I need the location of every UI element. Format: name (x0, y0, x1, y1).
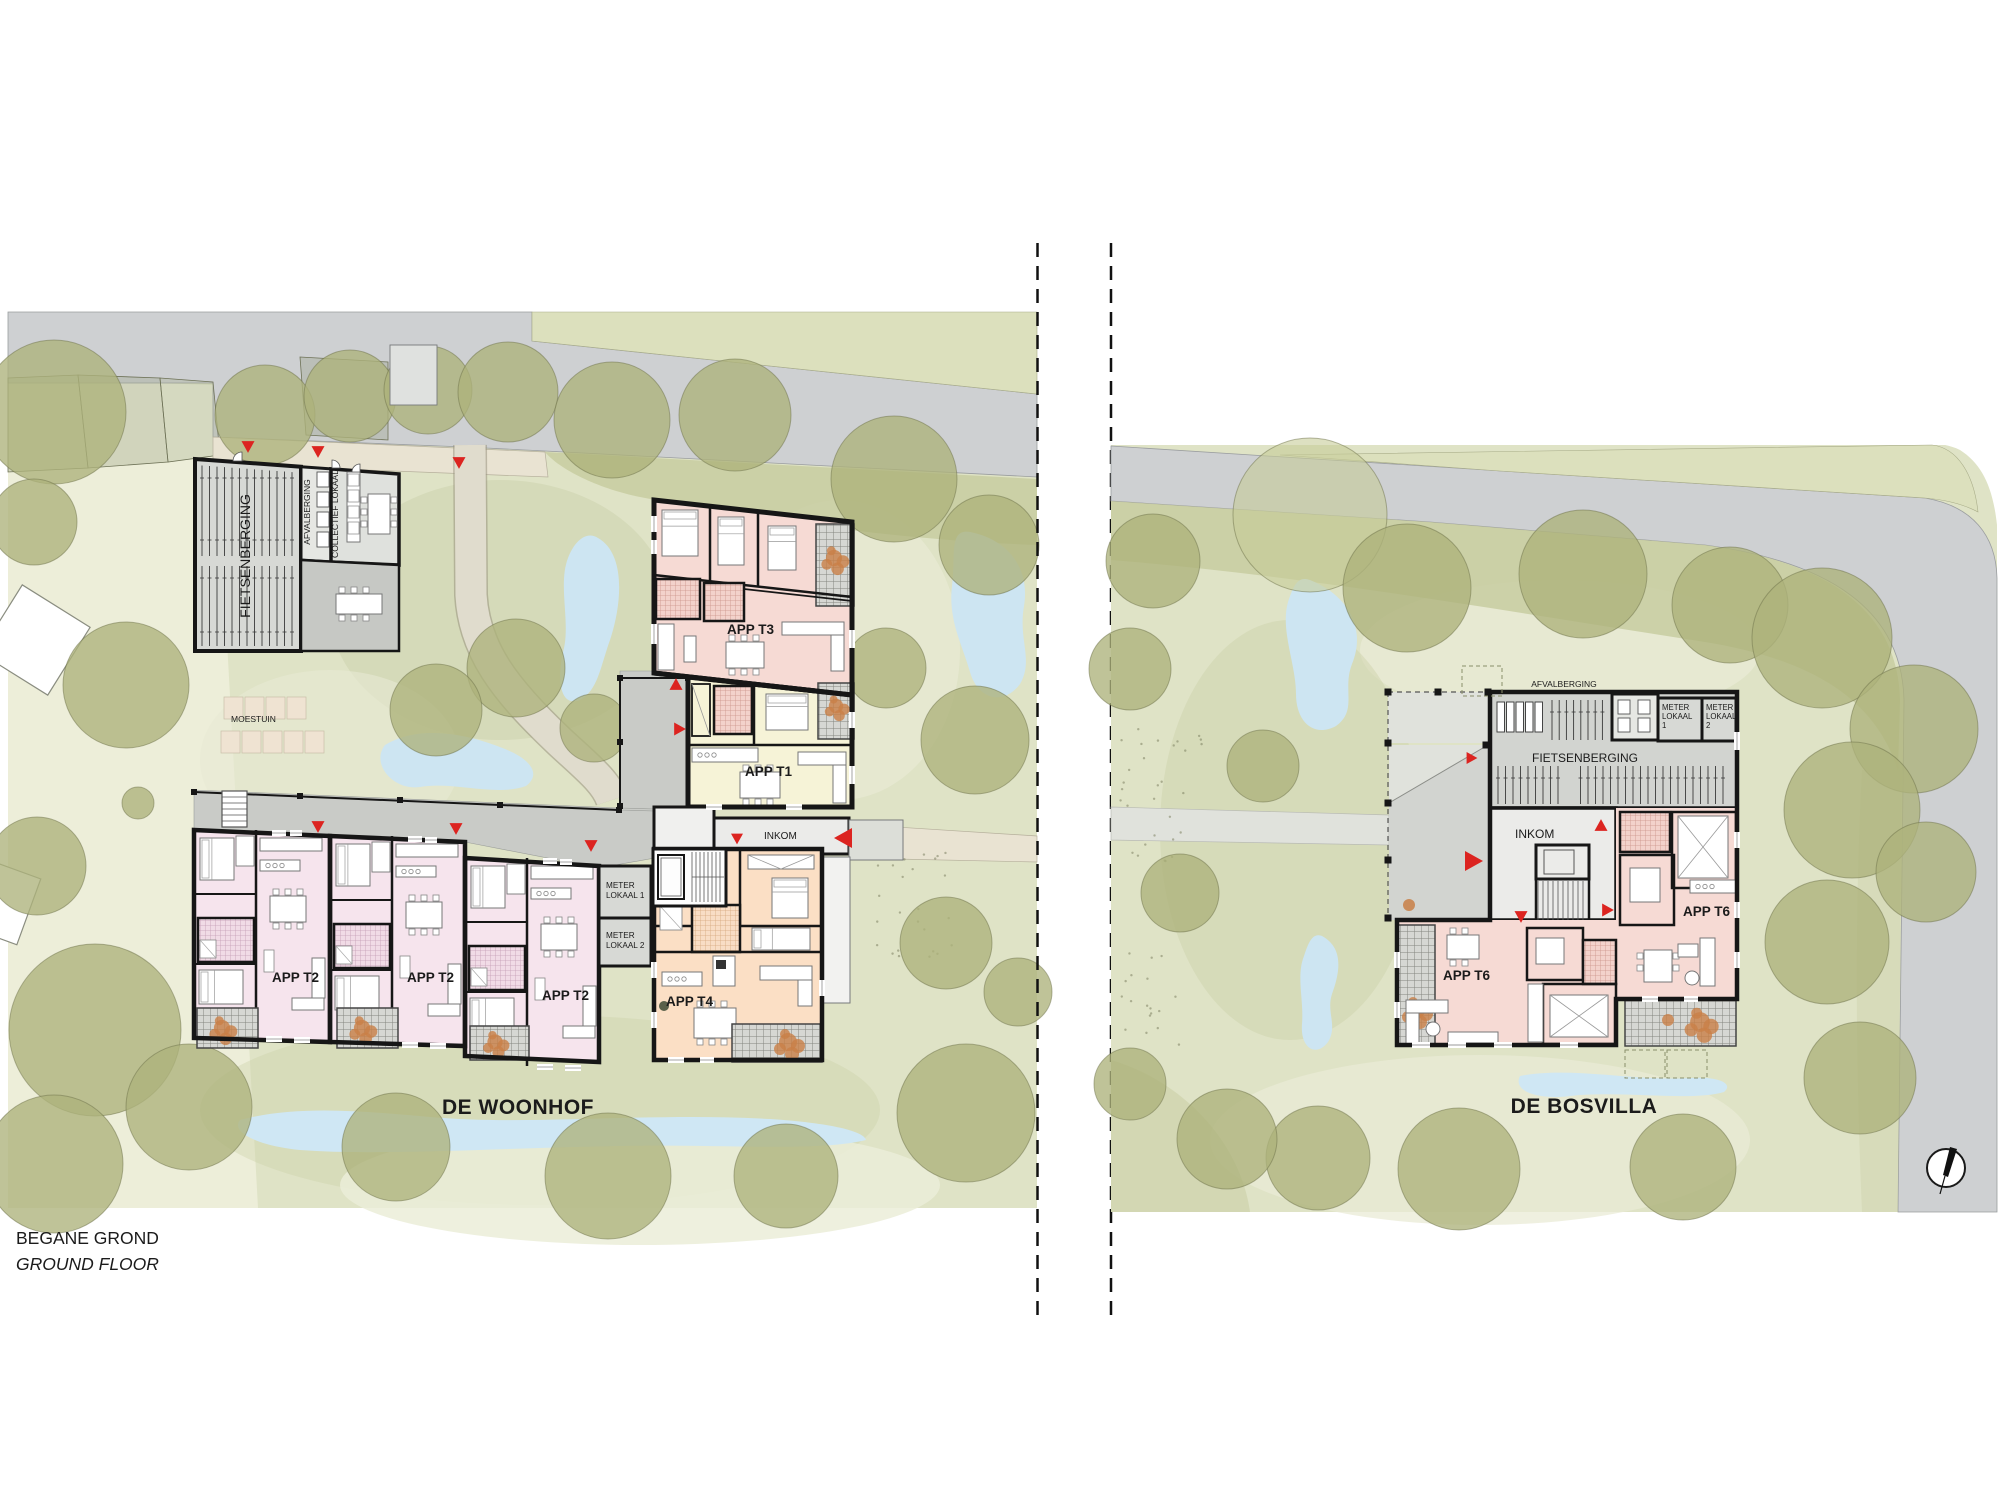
svg-text:LOKAAL: LOKAAL (1706, 712, 1737, 721)
svg-text:FIETSENBERGING: FIETSENBERGING (237, 494, 253, 618)
svg-text:INKOM: INKOM (1515, 827, 1554, 841)
svg-text:METER: METER (606, 931, 635, 940)
svg-text:APP T6: APP T6 (1683, 904, 1731, 919)
svg-text:AFVALBERGING: AFVALBERGING (1531, 679, 1597, 689)
svg-text:2: 2 (1706, 721, 1710, 730)
svg-text:DE BOSVILLA: DE BOSVILLA (1511, 1095, 1658, 1118)
svg-text:APP T2: APP T2 (542, 988, 589, 1003)
svg-text:APP T1: APP T1 (745, 764, 793, 779)
svg-text:METER: METER (1706, 703, 1734, 712)
svg-text:AFVALBERGING: AFVALBERGING (302, 479, 312, 545)
svg-text:LOKAAL 2: LOKAAL 2 (606, 941, 645, 950)
svg-text:METER: METER (1662, 703, 1690, 712)
svg-text:LOKAAL: LOKAAL (1662, 712, 1693, 721)
svg-text:GROUND FLOOR: GROUND FLOOR (16, 1254, 159, 1274)
svg-text:INKOM: INKOM (764, 831, 797, 842)
svg-text:MOESTUIN: MOESTUIN (231, 714, 276, 724)
svg-text:COLLECTIEF LOKAAL: COLLECTIEF LOKAAL (330, 470, 340, 558)
svg-text:APP T3: APP T3 (727, 622, 775, 637)
svg-text:METER: METER (606, 881, 635, 890)
svg-text:DE WOONHOF: DE WOONHOF (442, 1096, 594, 1119)
svg-text:1: 1 (1662, 721, 1666, 730)
svg-text:APP T2: APP T2 (272, 970, 319, 985)
svg-text:APP T4: APP T4 (666, 994, 714, 1009)
svg-text:APP T6: APP T6 (1443, 968, 1491, 983)
svg-text:APP T2: APP T2 (407, 970, 454, 985)
svg-text:LOKAAL 1: LOKAAL 1 (606, 891, 645, 900)
svg-text:BEGANE GROND: BEGANE GROND (16, 1228, 159, 1248)
svg-text:FIETSENBERGING: FIETSENBERGING (1532, 751, 1638, 765)
